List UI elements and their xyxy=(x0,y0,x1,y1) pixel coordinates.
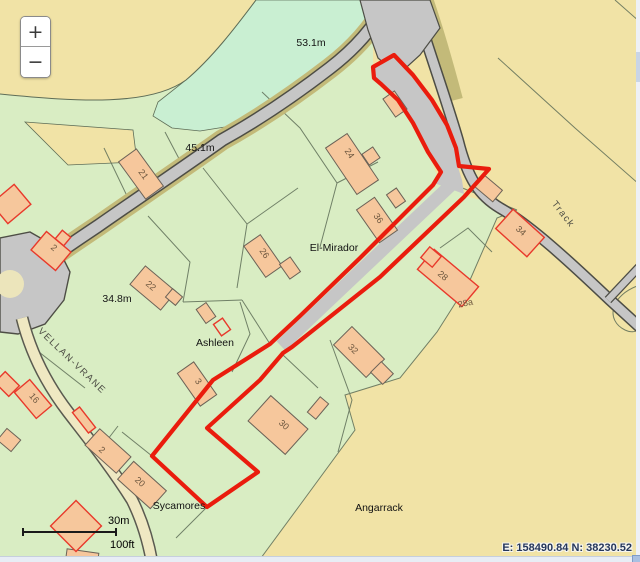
map-label-sycamores: Sycamores xyxy=(153,500,206,512)
horizontal-scrollbar-track[interactable] xyxy=(0,556,640,562)
map-label-ashleen: Ashleen xyxy=(196,337,234,349)
map-label-45-1m: 45.1m xyxy=(185,142,214,154)
map-label-el-mirador: El-Mirador xyxy=(310,242,359,254)
map-label-53-1m: 53.1m xyxy=(296,37,325,49)
zoom-in-button[interactable]: + xyxy=(21,17,50,47)
map-label-34-8m: 34.8m xyxy=(102,293,131,305)
scale-bar: 30m 100ft xyxy=(22,513,152,553)
vertical-scrollbar-thumb[interactable] xyxy=(636,52,640,82)
map-viewport: 53.1m45.1m34.8mEl-MiradorAshleenSycamore… xyxy=(0,0,640,562)
scale-bar-line xyxy=(22,531,117,533)
vertical-scrollbar-track[interactable] xyxy=(636,0,640,556)
scale-metric-label: 30m xyxy=(108,515,129,527)
zoom-control: + − xyxy=(20,16,51,78)
scrollbar-corner xyxy=(632,555,640,562)
scale-tick-right xyxy=(115,528,117,536)
coordinate-readout: E: 158490.84 N: 38230.52 xyxy=(502,542,632,554)
zoom-out-button[interactable]: − xyxy=(21,47,50,77)
map-canvas[interactable]: 53.1m45.1m34.8mEl-MiradorAshleenSycamore… xyxy=(0,0,640,562)
scale-tick-left xyxy=(22,528,24,536)
scale-imperial-label: 100ft xyxy=(110,539,134,551)
map-label-angarrack: Angarrack xyxy=(355,502,404,514)
